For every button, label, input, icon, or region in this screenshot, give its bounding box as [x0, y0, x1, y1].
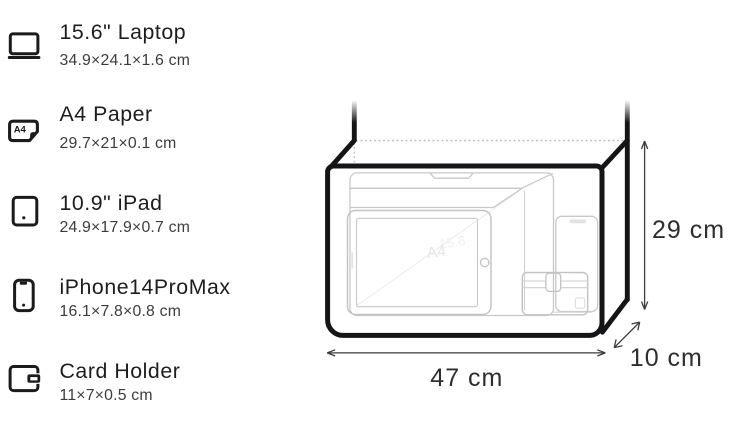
svg-text:A4: A4: [14, 125, 27, 136]
svg-text:15.6: 15.6: [438, 233, 466, 252]
